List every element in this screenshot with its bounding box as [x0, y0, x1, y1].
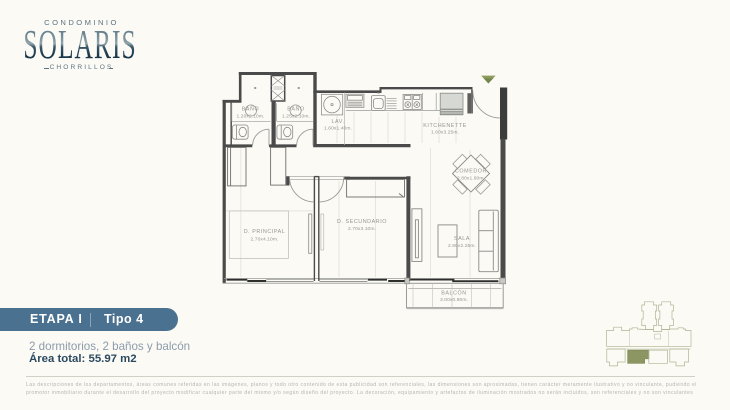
svg-text:KITCHENETTE: KITCHENETTE — [423, 123, 467, 129]
svg-text:BAÑO: BAÑO — [287, 106, 304, 113]
svg-text:1.20x2.10m.: 1.20x2.10m. — [236, 113, 264, 119]
svg-text:2.70x4.10m.: 2.70x4.10m. — [250, 237, 278, 243]
svg-text:3.00x0.80m.: 3.00x0.80m. — [440, 297, 468, 303]
svg-text:D. PRINCIPAL: D. PRINCIPAL — [244, 229, 286, 235]
svg-text:2.70x3.10m.: 2.70x3.10m. — [348, 226, 376, 232]
svg-text:BAÑO: BAÑO — [242, 106, 259, 113]
svg-text:2.80x1.90m.: 2.80x1.90m. — [457, 176, 485, 182]
svg-text:2.80x2.25m.: 2.80x2.25m. — [448, 243, 476, 249]
svg-text:1.25x2.10m.: 1.25x2.10m. — [282, 113, 310, 119]
svg-text:LAV.: LAV. — [332, 119, 345, 125]
svg-text:COMEDOR: COMEDOR — [455, 169, 487, 175]
svg-text:1.60x3.25m.: 1.60x3.25m. — [431, 129, 459, 135]
svg-text:SALA: SALA — [454, 236, 470, 242]
svg-text:1.60x1.40m.: 1.60x1.40m. — [324, 125, 352, 131]
svg-text:D. SECUNDARIO: D. SECUNDARIO — [337, 219, 387, 225]
svg-text:BALCÓN: BALCÓN — [441, 289, 466, 296]
